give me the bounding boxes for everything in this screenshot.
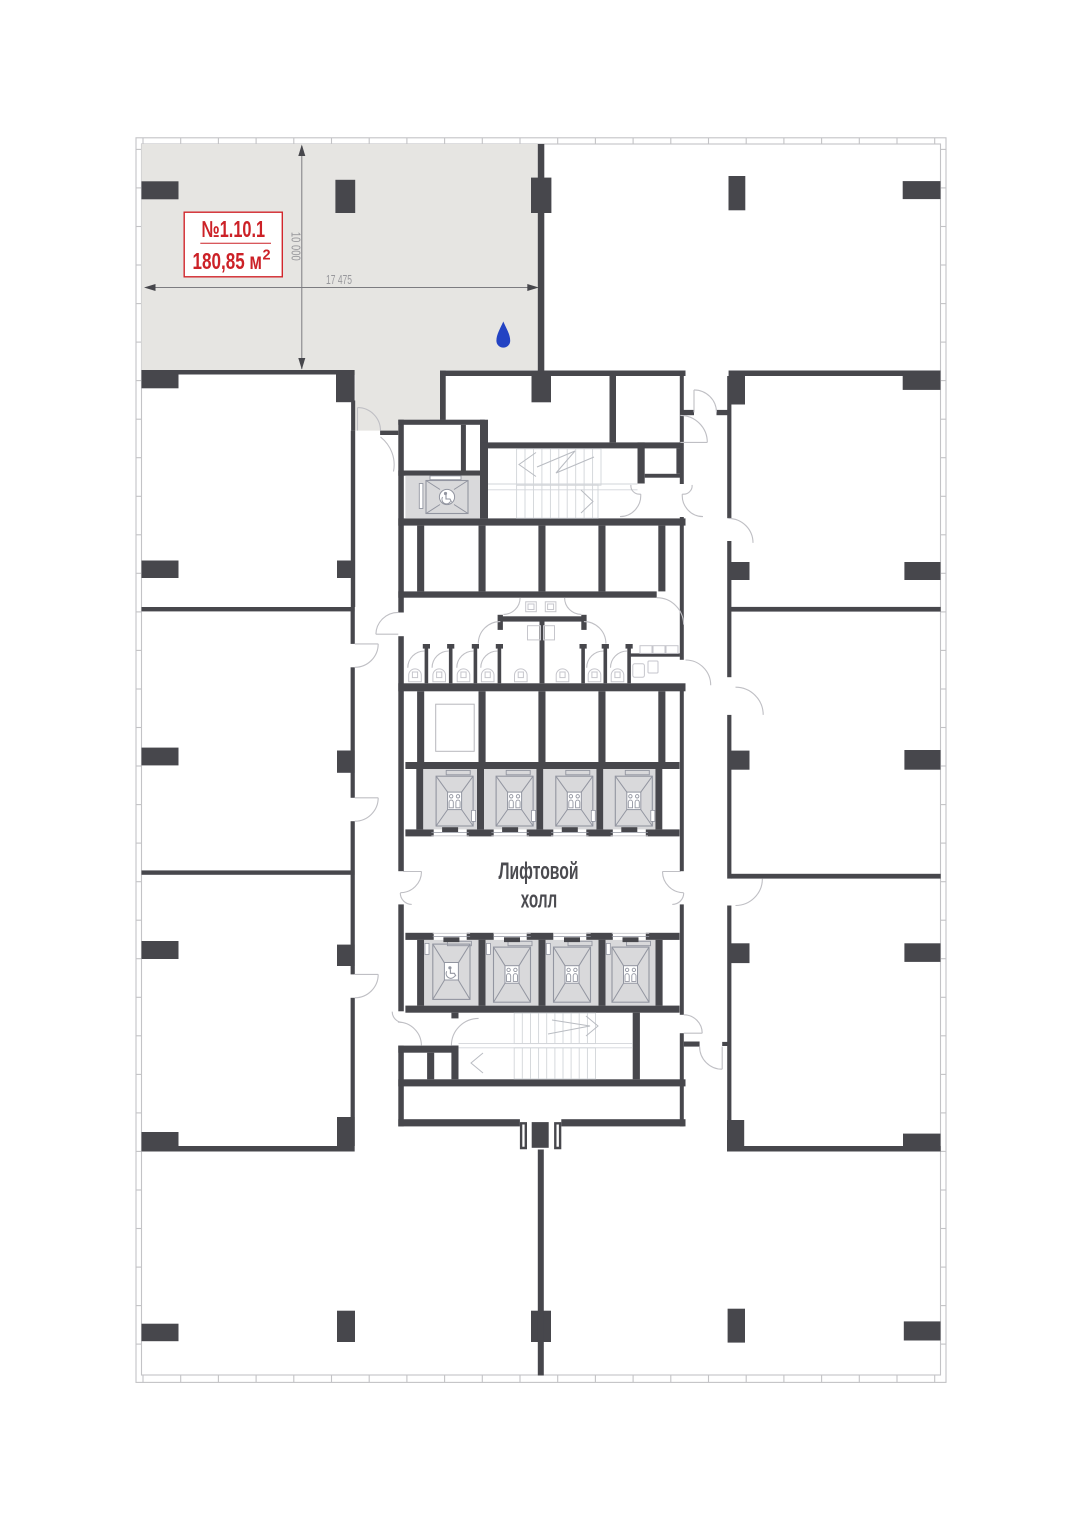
svg-text:10 000: 10 000 [288, 232, 302, 261]
svg-text:Лифтовой: Лифтовой [499, 858, 579, 885]
svg-text:180,85 м: 180,85 м [193, 248, 263, 274]
svg-text:2: 2 [263, 248, 271, 264]
svg-text:холл: холл [521, 887, 558, 914]
svg-text:№1.10.1: №1.10.1 [202, 216, 266, 242]
svg-text:17 475: 17 475 [326, 273, 352, 287]
